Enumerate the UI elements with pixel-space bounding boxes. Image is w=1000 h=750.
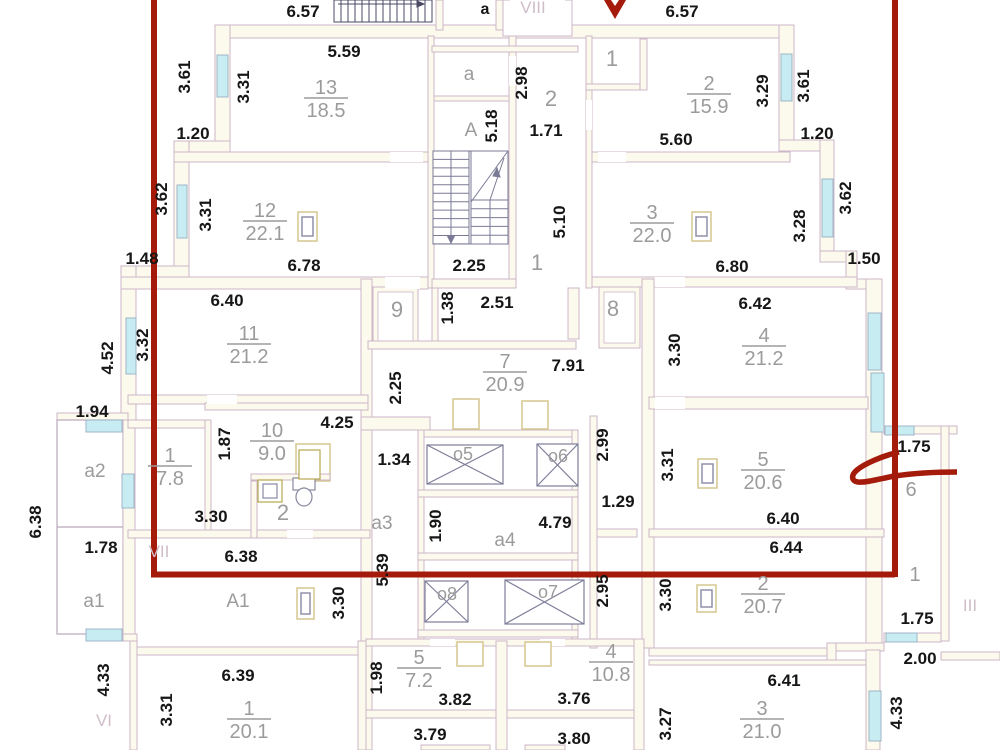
svg-text:о7: о7 [538, 582, 558, 602]
svg-text:2.98: 2.98 [512, 66, 531, 99]
svg-text:VII: VII [149, 542, 170, 561]
svg-text:2.25: 2.25 [386, 371, 405, 404]
svg-text:18.5: 18.5 [307, 100, 346, 122]
svg-text:1: 1 [606, 46, 618, 71]
svg-text:6.44: 6.44 [769, 538, 803, 557]
svg-text:a: a [464, 64, 475, 85]
svg-text:3.82: 3.82 [438, 690, 471, 709]
svg-text:4.52: 4.52 [98, 341, 117, 374]
svg-text:21.0: 21.0 [743, 721, 782, 743]
svg-text:5: 5 [413, 647, 424, 669]
svg-text:6.78: 6.78 [287, 256, 320, 275]
svg-text:3.27: 3.27 [656, 707, 675, 740]
svg-text:2.95: 2.95 [593, 574, 612, 607]
svg-text:VI: VI [96, 711, 112, 730]
svg-text:1: 1 [243, 698, 254, 720]
svg-text:4.25: 4.25 [320, 413, 353, 432]
svg-text:1: 1 [909, 564, 920, 586]
svg-text:22.1: 22.1 [246, 223, 285, 245]
svg-text:2.25: 2.25 [452, 256, 485, 275]
svg-text:3.29: 3.29 [753, 74, 772, 107]
svg-text:1.87: 1.87 [215, 427, 234, 460]
svg-text:3.30: 3.30 [665, 333, 684, 366]
svg-text:20.9: 20.9 [486, 374, 525, 396]
svg-text:21.2: 21.2 [230, 346, 269, 368]
svg-text:10.8: 10.8 [592, 664, 631, 686]
svg-text:1.34: 1.34 [377, 450, 411, 469]
svg-text:7.91: 7.91 [551, 356, 584, 375]
svg-text:1.38: 1.38 [438, 291, 457, 324]
svg-text:a3: a3 [371, 513, 392, 534]
svg-text:1.75: 1.75 [897, 437, 930, 456]
svg-text:6.38: 6.38 [224, 547, 257, 566]
svg-text:22.0: 22.0 [633, 225, 672, 247]
svg-text:3.30: 3.30 [656, 578, 675, 611]
svg-text:3.31: 3.31 [157, 693, 176, 726]
svg-text:6.80: 6.80 [715, 257, 748, 276]
svg-text:4.79: 4.79 [538, 513, 571, 532]
svg-text:3.31: 3.31 [196, 198, 215, 231]
svg-text:7: 7 [499, 351, 510, 373]
svg-text:6.40: 6.40 [210, 291, 243, 310]
svg-text:6: 6 [905, 479, 916, 501]
svg-text:15.9: 15.9 [690, 96, 729, 118]
svg-text:11: 11 [239, 323, 260, 345]
svg-text:9: 9 [391, 297, 403, 322]
svg-text:a2: a2 [84, 461, 105, 482]
svg-text:3.79: 3.79 [413, 725, 446, 744]
svg-text:3.32: 3.32 [133, 328, 152, 361]
svg-text:6.42: 6.42 [738, 294, 771, 313]
svg-text:7.2: 7.2 [405, 670, 433, 692]
svg-text:VIII: VIII [520, 0, 546, 17]
svg-text:3.76: 3.76 [557, 689, 590, 708]
svg-text:1.75: 1.75 [900, 609, 933, 628]
svg-text:3: 3 [756, 698, 767, 720]
svg-text:1.29: 1.29 [601, 492, 634, 511]
svg-text:2: 2 [703, 73, 714, 95]
svg-text:3.80: 3.80 [557, 729, 590, 748]
svg-text:20.1: 20.1 [230, 721, 269, 743]
svg-text:3.30: 3.30 [329, 586, 348, 619]
svg-text:6.40: 6.40 [766, 509, 799, 528]
svg-text:6.57: 6.57 [286, 2, 319, 21]
svg-text:1: 1 [531, 250, 543, 275]
svg-text:4: 4 [758, 325, 769, 347]
svg-text:a1: a1 [83, 591, 104, 612]
svg-text:III: III [963, 596, 977, 615]
svg-text:5.18: 5.18 [482, 109, 501, 142]
svg-text:2: 2 [277, 500, 289, 525]
svg-text:3.28: 3.28 [790, 209, 809, 242]
svg-text:20.6: 20.6 [744, 472, 783, 494]
svg-text:2: 2 [757, 573, 768, 595]
svg-text:2: 2 [545, 86, 557, 111]
svg-text:4.33: 4.33 [887, 696, 906, 729]
svg-text:1.90: 1.90 [426, 509, 445, 542]
svg-text:6.57: 6.57 [665, 2, 698, 21]
svg-text:3.61: 3.61 [794, 69, 813, 102]
svg-text:3.30: 3.30 [194, 507, 227, 526]
svg-text:1.50: 1.50 [847, 249, 880, 268]
svg-text:3.31: 3.31 [658, 448, 677, 481]
svg-text:A: A [465, 120, 478, 141]
svg-text:10: 10 [261, 420, 283, 442]
svg-text:20.7: 20.7 [744, 596, 783, 618]
svg-text:о8: о8 [437, 584, 457, 604]
svg-text:о5: о5 [453, 444, 473, 464]
svg-text:3.61: 3.61 [175, 60, 194, 93]
svg-text:2.99: 2.99 [593, 428, 612, 461]
svg-text:о6: о6 [548, 446, 568, 466]
svg-text:5.39: 5.39 [373, 553, 392, 586]
svg-text:6.38: 6.38 [26, 505, 45, 538]
svg-text:5.10: 5.10 [550, 205, 569, 238]
svg-text:9.0: 9.0 [258, 443, 286, 465]
svg-text:3: 3 [646, 202, 657, 224]
svg-text:3.31: 3.31 [234, 70, 253, 103]
svg-text:1.20: 1.20 [800, 124, 833, 143]
svg-text:13: 13 [315, 77, 337, 99]
svg-text:1: 1 [164, 445, 175, 467]
svg-text:1.48: 1.48 [125, 249, 158, 268]
svg-text:3.62: 3.62 [152, 182, 171, 215]
svg-text:7.8: 7.8 [156, 468, 184, 490]
svg-text:A1: A1 [226, 591, 249, 612]
svg-text:a4: a4 [494, 530, 516, 551]
svg-text:5.60: 5.60 [659, 130, 692, 149]
svg-text:1.98: 1.98 [367, 661, 386, 694]
svg-text:4: 4 [605, 641, 616, 663]
svg-text:a: a [481, 1, 490, 18]
svg-text:2.51: 2.51 [480, 293, 513, 312]
svg-text:3.62: 3.62 [836, 181, 855, 214]
svg-text:6.41: 6.41 [767, 671, 800, 690]
svg-text:8: 8 [607, 296, 619, 321]
svg-text:6.39: 6.39 [221, 666, 254, 685]
svg-text:1.94: 1.94 [75, 402, 109, 421]
svg-text:2.00: 2.00 [903, 649, 936, 668]
svg-text:21.2: 21.2 [745, 348, 784, 370]
svg-text:5: 5 [757, 449, 768, 471]
svg-text:5.59: 5.59 [327, 42, 360, 61]
svg-text:4.33: 4.33 [94, 663, 113, 696]
svg-text:1.78: 1.78 [84, 538, 117, 557]
svg-text:1.71: 1.71 [529, 121, 562, 140]
svg-text:1.20: 1.20 [176, 124, 209, 143]
svg-text:12: 12 [254, 200, 276, 222]
